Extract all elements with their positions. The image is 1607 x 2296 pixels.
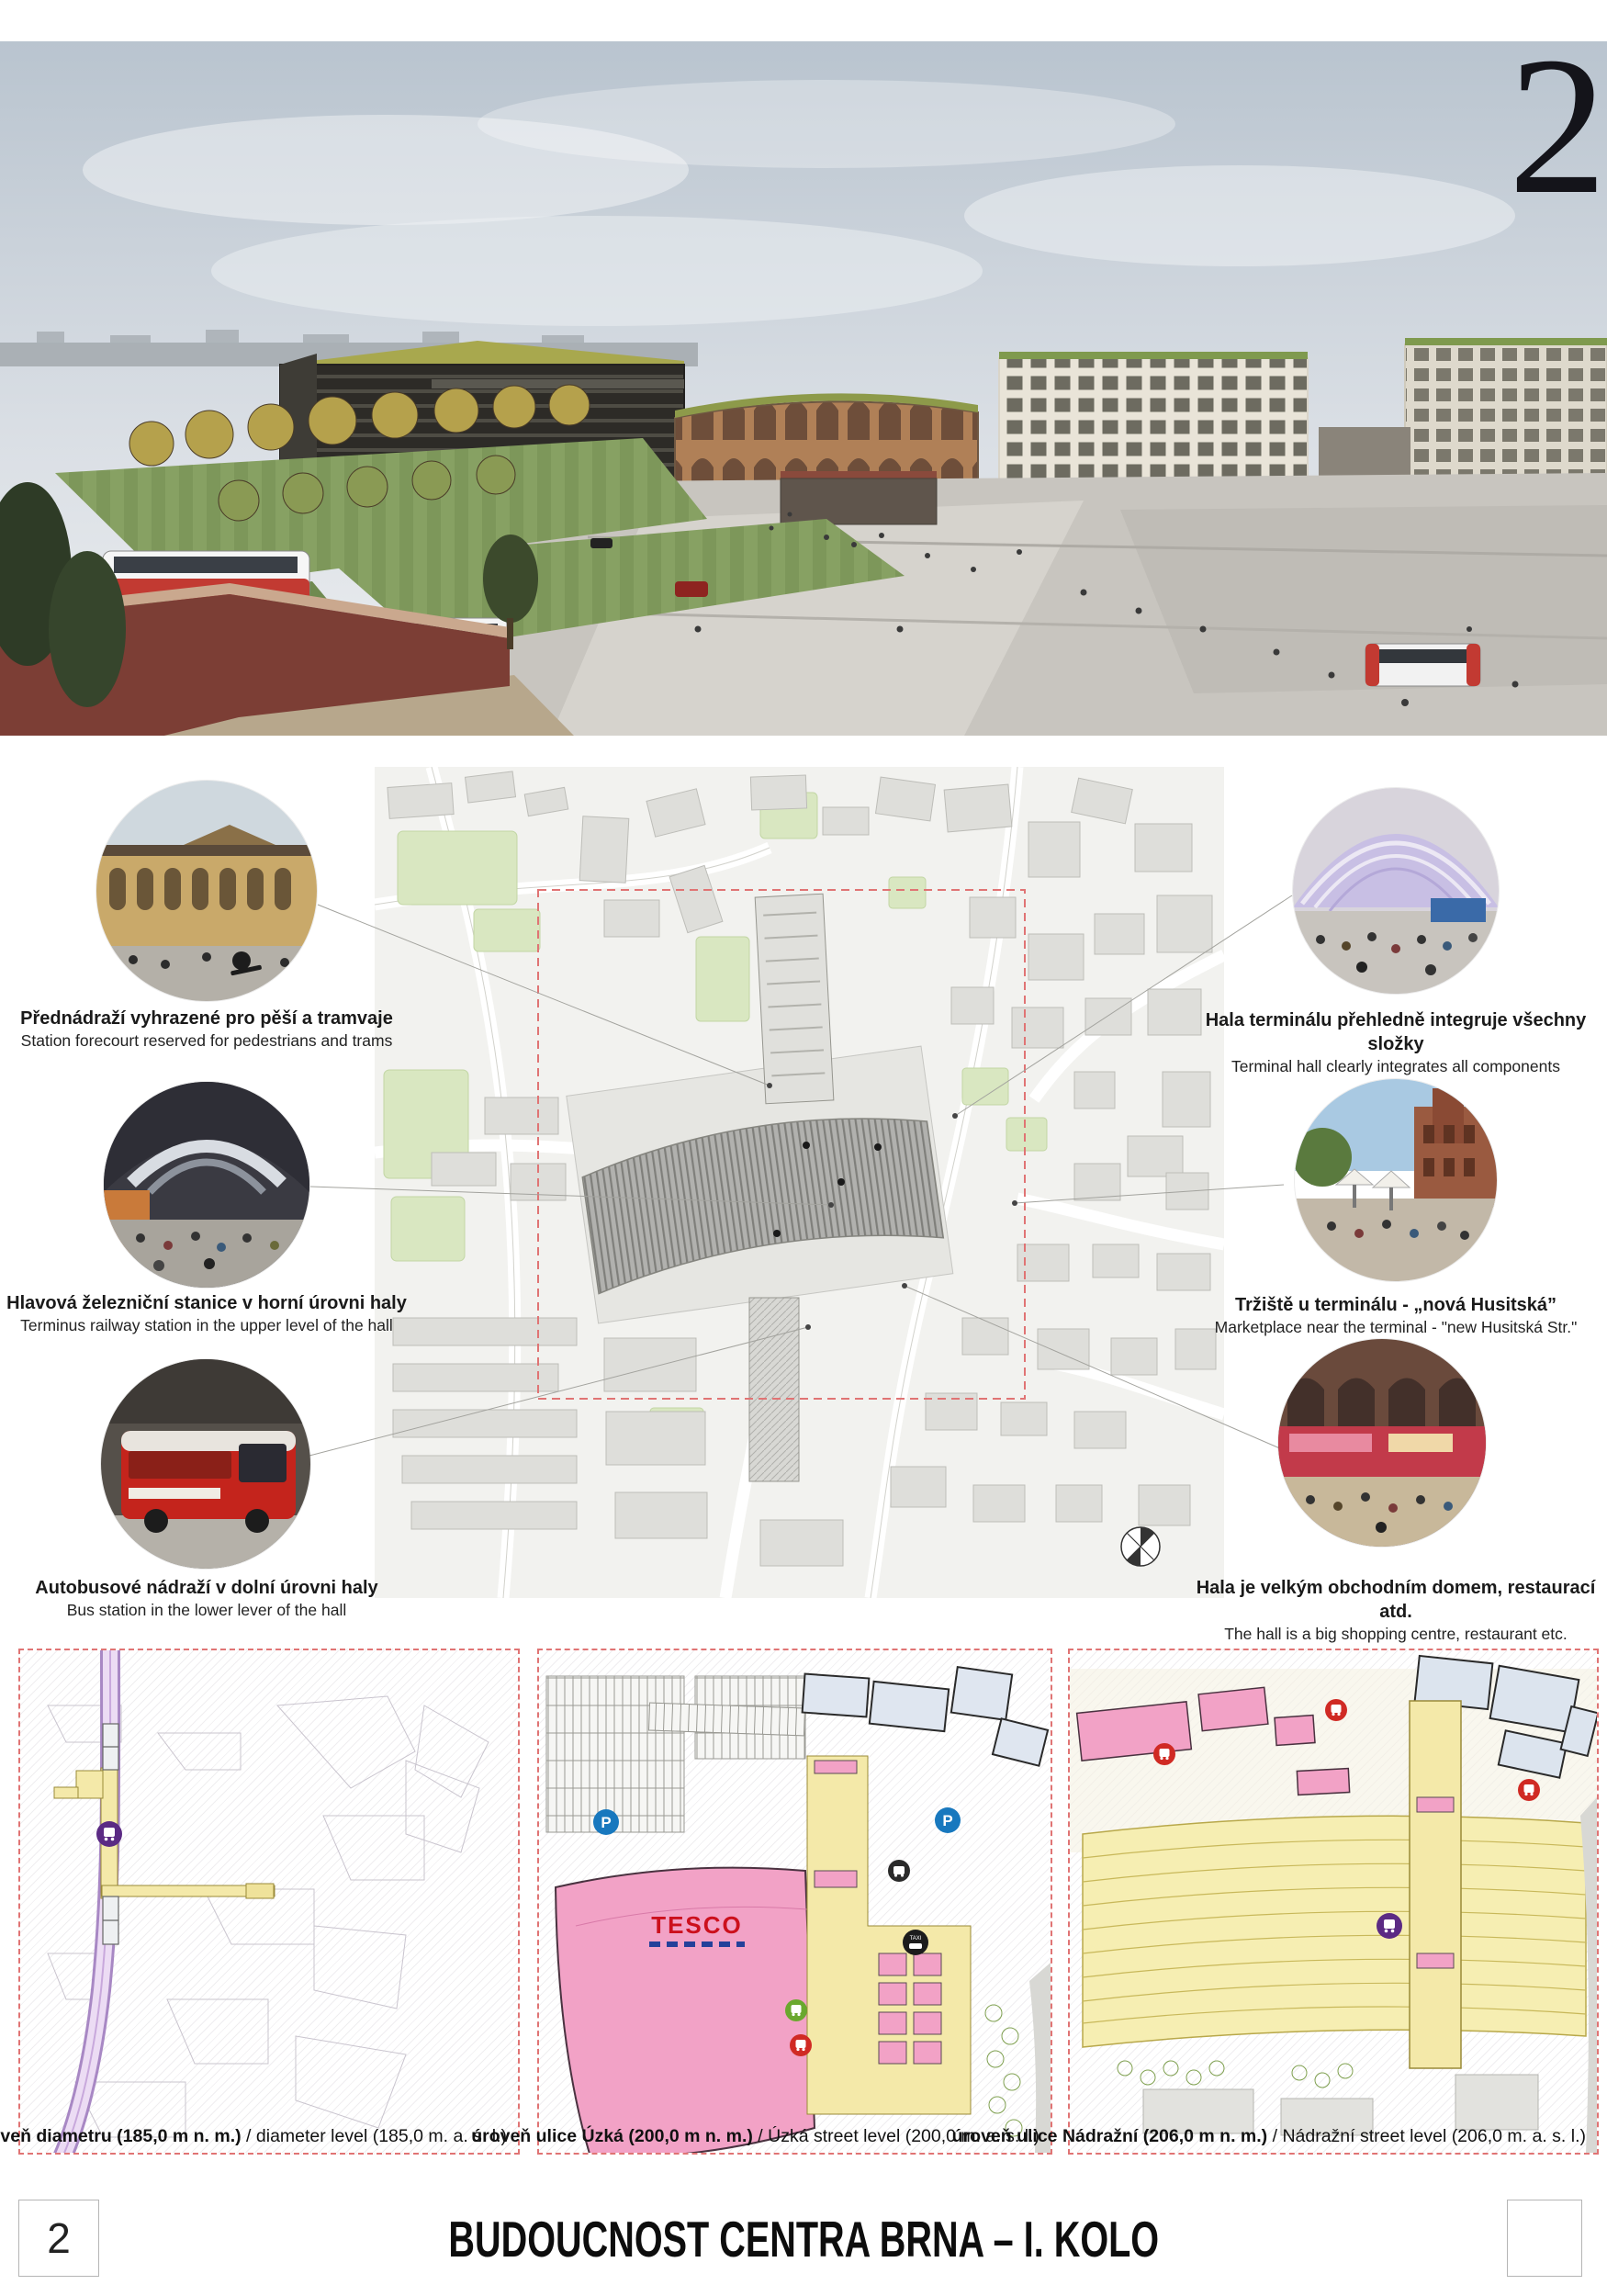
competition-board: 2 bbox=[0, 0, 1607, 2296]
annotation-en: Terminal hall clearly integrates all com… bbox=[1194, 1056, 1598, 1077]
svg-text:TESCO: TESCO bbox=[651, 1911, 743, 1939]
parking-icon: P bbox=[593, 1809, 619, 1835]
taxi-icon: TAXI bbox=[903, 1930, 928, 1955]
annotation-right-2: Tržiště u terminálu - „nová Husitská” Ma… bbox=[1194, 1293, 1598, 1338]
photo-rail-hall-interior bbox=[104, 1082, 309, 1288]
parking-area bbox=[546, 1676, 805, 1832]
plan-diameter-level: úroveň diametru (185,0 m n. m.) / diamet… bbox=[18, 1649, 520, 2155]
annotation-en: Terminus railway station in the upper le… bbox=[5, 1315, 409, 1336]
parking-icon: P bbox=[935, 1807, 961, 1833]
annotation-cz: Tržiště u terminálu - „nová Husitská” bbox=[1194, 1293, 1598, 1317]
trees bbox=[1118, 2061, 1353, 2088]
tram-stop-icon bbox=[96, 1821, 122, 1847]
svg-text:TAXI: TAXI bbox=[910, 1936, 922, 1941]
annotation-en: Marketplace near the terminal - "new Hus… bbox=[1194, 1317, 1598, 1338]
tram-stop-icon bbox=[1325, 1699, 1347, 1721]
photo-historic-station bbox=[96, 781, 317, 1001]
compass-icon bbox=[1121, 1527, 1160, 1566]
bus-icon bbox=[888, 1860, 910, 1882]
annotation-left-2: Hlavová železniční stanice v horní úrovn… bbox=[5, 1291, 409, 1336]
annotation-cz: Hlavová železniční stanice v horní úrovn… bbox=[5, 1291, 409, 1315]
car bbox=[590, 538, 612, 548]
footer-empty-box bbox=[1507, 2200, 1582, 2277]
plan-caption-cz: úroveň ulice Nádražní (206,0 m n. m.) bbox=[952, 2126, 1268, 2146]
site-plan-map bbox=[375, 767, 1224, 1598]
annotation-cz: Hala je velkým obchodním domem, restaura… bbox=[1194, 1576, 1598, 1624]
car bbox=[675, 581, 708, 597]
plan-nadrazni-level: úroveň ulice Nádražní (206,0 m n. m.) / … bbox=[1068, 1649, 1599, 2155]
aerial-rendering: 2 bbox=[0, 41, 1607, 736]
plan-uzka-level: P P TAXI bbox=[537, 1649, 1052, 2155]
tram-stop-icon bbox=[785, 1999, 807, 2021]
annotation-right-3: Hala je velkým obchodním domem, restaura… bbox=[1194, 1576, 1598, 1645]
trees bbox=[985, 2005, 1022, 2136]
annotation-en: The hall is a big shopping centre, resta… bbox=[1194, 1624, 1598, 1645]
plan-caption: úroveň ulice Nádražní (206,0 m n. m.) / … bbox=[952, 2126, 1586, 2147]
tram-stop-icon bbox=[1518, 1779, 1540, 1801]
plan-caption-en: / Nádražní street level (206,0 m. a. s. … bbox=[1267, 2126, 1586, 2146]
svg-text:P: P bbox=[942, 1812, 952, 1829]
tram bbox=[1365, 644, 1480, 686]
photo-bus-station bbox=[101, 1359, 310, 1569]
annotation-cz: Autobusové nádraží v dolní úrovni haly bbox=[5, 1576, 409, 1600]
existing-buildings bbox=[803, 1667, 1048, 1766]
board-number: 2 bbox=[1469, 34, 1607, 236]
photo-terminal-hall bbox=[1293, 788, 1499, 994]
bus-icon bbox=[121, 1431, 296, 1533]
annotation-left-1: Přednádraží vyhrazené pro pěší a tramvaj… bbox=[5, 1007, 409, 1052]
plan-caption-en: / diameter level (185,0 m. a. s. l.) bbox=[242, 2126, 507, 2146]
svg-text:P: P bbox=[601, 1814, 611, 1831]
rail-stop-icon bbox=[1377, 1913, 1402, 1939]
aerial-rendering-graphic bbox=[0, 41, 1607, 736]
plan-caption-cz: úroveň ulice Úzká (200,0 m n. m.) bbox=[471, 2126, 753, 2146]
annotation-cz: Hala terminálu přehledně integruje všech… bbox=[1194, 1008, 1598, 1056]
photo-shopping-hall bbox=[1278, 1339, 1486, 1547]
footer-title: BUDOUCNOST CENTRA BRNA – I. KOLO bbox=[0, 2202, 1607, 2276]
underground-concourse bbox=[54, 1768, 275, 1898]
annotation-left-3: Autobusové nádraží v dolní úrovni haly B… bbox=[5, 1576, 409, 1621]
annotation-right-1: Hala terminálu přehledně integruje všech… bbox=[1194, 1008, 1598, 1077]
photo-marketplace bbox=[1295, 1079, 1497, 1281]
annotation-en: Station forecourt reserved for pedestria… bbox=[5, 1030, 409, 1052]
annotation-cz: Přednádraží vyhrazené pro pěší a tramvaj… bbox=[5, 1007, 409, 1030]
road bbox=[1029, 1963, 1051, 2153]
plan-caption: úroveň diametru (185,0 m n. m.) / diamet… bbox=[0, 2126, 507, 2147]
plan-caption-cz: úroveň diametru (185,0 m n. m.) bbox=[0, 2126, 242, 2146]
tram-stop-icon bbox=[790, 2034, 812, 2056]
tram-stop-icon bbox=[1153, 1743, 1175, 1765]
annotation-en: Bus station in the lower lever of the ha… bbox=[5, 1600, 409, 1621]
